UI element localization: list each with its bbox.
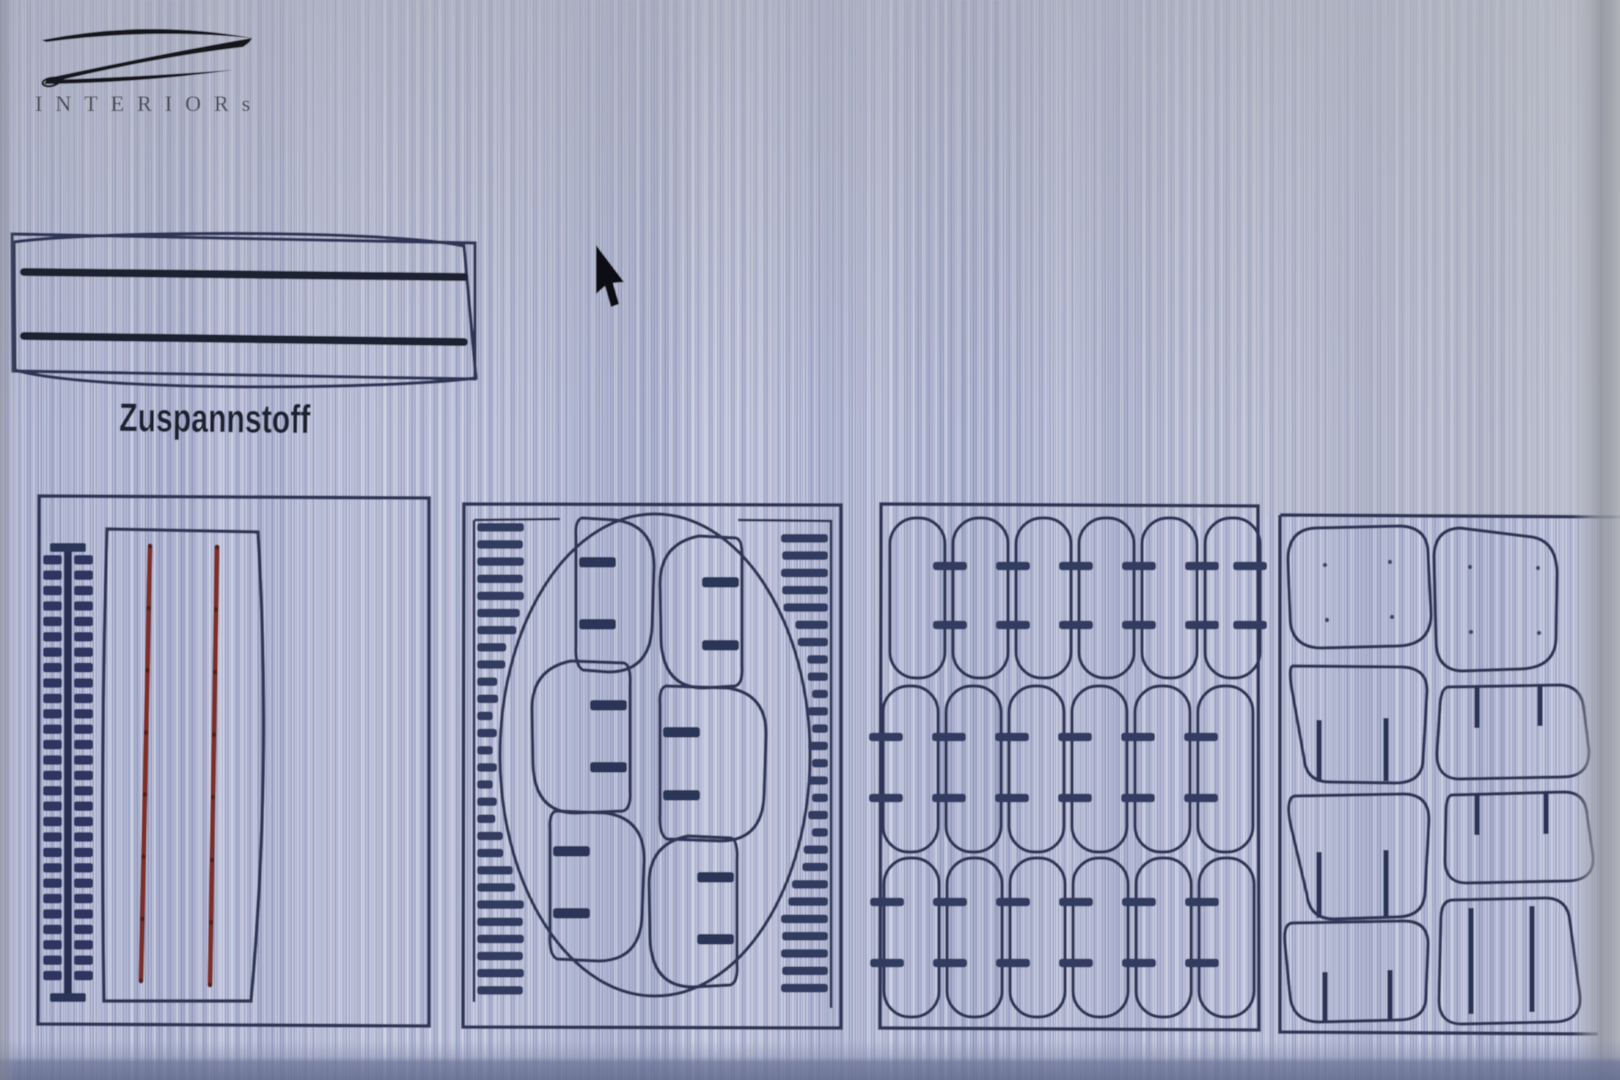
svg-text:Zuspannstoff: Zuspannstoff <box>119 395 311 442</box>
svg-text:INTERIORs: INTERIORs <box>35 91 263 116</box>
